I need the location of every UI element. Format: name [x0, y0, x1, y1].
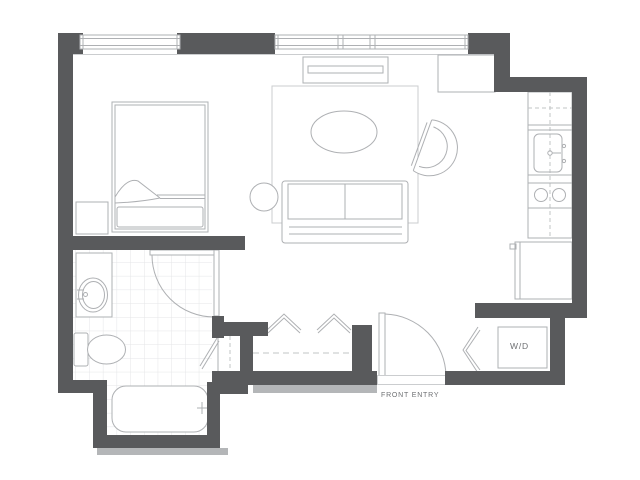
bedroom-window	[80, 35, 180, 49]
wall-strip-closet	[253, 385, 377, 393]
toilet-bowl	[88, 335, 126, 364]
bifold-closet-doors	[267, 314, 351, 333]
floor-plan-drawing	[0, 0, 640, 480]
front-door	[378, 313, 447, 385]
wall-strip-tub	[97, 448, 228, 455]
wall-tub-stub	[207, 382, 248, 394]
refrigerator	[510, 242, 572, 299]
corner-closet	[438, 55, 495, 92]
washer-dryer-label: W/D	[510, 341, 529, 351]
tv-console	[303, 57, 388, 83]
threshold	[378, 376, 446, 385]
wall-left	[58, 33, 73, 393]
wd-closet-door	[463, 327, 480, 373]
coffee-table	[311, 111, 377, 153]
sofa	[282, 181, 408, 243]
toilet-tank	[74, 333, 88, 366]
front-door-swing	[385, 314, 446, 376]
floor-plan: FRONT ENTRY W/D	[0, 0, 640, 480]
kitchen-sink	[534, 134, 566, 172]
kitchen-counter	[528, 92, 572, 238]
wall-top-left-corner	[58, 33, 83, 54]
wall-closet-top	[222, 322, 268, 336]
wall-closet-left	[240, 336, 253, 376]
wall-right	[572, 77, 587, 318]
nightstand	[76, 202, 108, 234]
wall-top-mid	[177, 33, 275, 54]
side-table	[250, 183, 278, 211]
living-window	[275, 35, 468, 49]
front-entry-label: FRONT ENTRY	[381, 392, 439, 399]
bed	[112, 102, 208, 232]
toilet	[74, 333, 126, 366]
vanity-sink	[76, 253, 112, 317]
wall-bedroom-bath	[58, 236, 245, 250]
wall-above-wd	[475, 303, 587, 318]
wall-bottom-right	[445, 371, 565, 385]
wall-closet-right	[352, 325, 372, 375]
bathtub	[112, 386, 208, 432]
wall-tub-bottom	[93, 435, 220, 448]
